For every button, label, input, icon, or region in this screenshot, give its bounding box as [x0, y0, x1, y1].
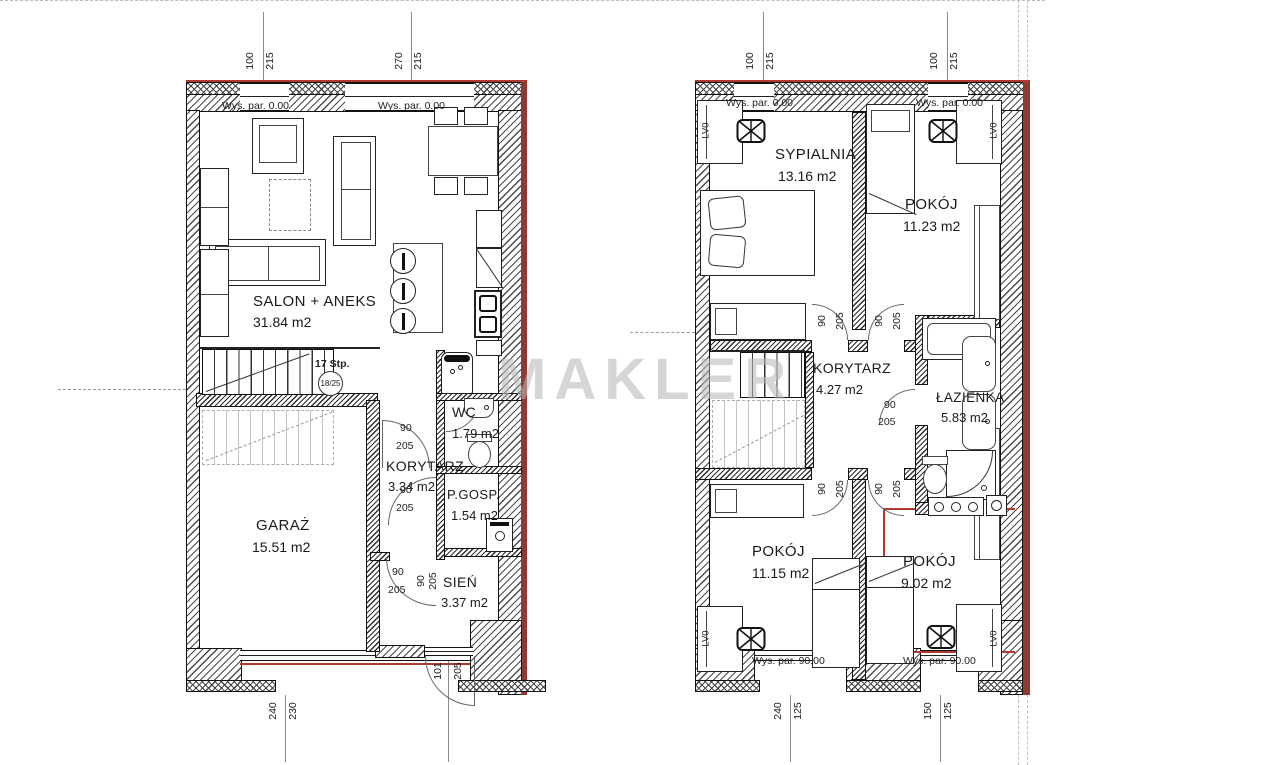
- dim-value: 150: [922, 693, 934, 729]
- level-label: Wys. par. 0.00: [726, 97, 793, 109]
- washbasin-cabinet: [962, 336, 996, 392]
- dim-value: 205: [891, 303, 903, 339]
- level-label: Wys. par. 0.00: [378, 100, 445, 112]
- room-area-sypialnia: 13.16 m2: [778, 168, 836, 184]
- wall-garage-top: [196, 393, 378, 407]
- room-area-salon: 31.84 m2: [253, 314, 311, 330]
- dim-value: 205: [891, 471, 903, 507]
- level-text: Wys. par. 0.00: [916, 97, 983, 109]
- dim-value: 100: [928, 43, 940, 79]
- kitchen-sink: [474, 290, 502, 338]
- radiator-fan-icon: [926, 622, 956, 652]
- toilet: [922, 456, 948, 494]
- room-name-text: ŁAZIENKA: [936, 390, 1004, 405]
- dim-value: 205: [427, 563, 439, 599]
- level-text: Wys. par. 0.00: [222, 100, 289, 112]
- room-label-pokoj2: POKÓJ: [752, 543, 805, 560]
- room-label-salon: SALON + ANEKS: [253, 293, 376, 310]
- wall-bottom: [470, 620, 522, 682]
- room-label-pokoj3: POKÓJ: [903, 553, 956, 570]
- footing: [846, 680, 921, 692]
- room-name-text: KORYTARZ: [813, 360, 891, 376]
- guide-line: [1018, 695, 1019, 765]
- wall-corridor-bottom: [848, 468, 868, 480]
- coffee-table: [269, 179, 311, 231]
- level-text: Wys. par. 0.00: [378, 100, 445, 112]
- dim-value: 270: [393, 43, 405, 79]
- room-name-text: SALON + ANEKS: [253, 293, 376, 310]
- hob-burner: [390, 248, 416, 274]
- dim-value: 100: [244, 43, 256, 79]
- room-area-sien: 3.37 m2: [441, 595, 488, 610]
- dim-line: [790, 695, 791, 762]
- washer: [986, 495, 1007, 516]
- dim-value: 205: [834, 471, 846, 507]
- room-label-lazienka: ŁAZIENKA: [936, 390, 1004, 405]
- door-leaf: [382, 420, 383, 468]
- shelf-unit: [200, 168, 229, 246]
- room-label-korytarz: KORYTARZ: [386, 458, 464, 474]
- single-bed: [812, 558, 860, 668]
- shelf-unit: [200, 249, 229, 337]
- dim-value: 205: [396, 440, 414, 452]
- room-name-text: POKÓJ: [905, 196, 958, 213]
- utility-appliance: [486, 518, 513, 552]
- wall-corridor-bottom: [695, 468, 812, 480]
- footing: [186, 680, 276, 692]
- guide-line: [58, 389, 186, 390]
- room-label-sien: SIEŃ: [443, 574, 477, 590]
- room-area-text: 4.27 m2: [816, 382, 863, 397]
- dim-value: 90: [873, 471, 885, 507]
- level-label: Wys. par. 0.00: [916, 97, 983, 109]
- room-area-text: 11.15 m2: [752, 565, 809, 581]
- room-area-pokoj2: 11.15 m2: [752, 565, 809, 581]
- dim-value: 90: [400, 484, 412, 496]
- radiator-label: LV0: [989, 113, 1000, 149]
- room-area-text: 5.83 m2: [941, 410, 988, 425]
- dim-line: [285, 695, 286, 762]
- dim-value: 101: [432, 653, 444, 689]
- room-name-text: SYPIALNIA: [775, 146, 856, 163]
- washer-counter: [928, 497, 984, 516]
- wall-bottom: [186, 648, 242, 682]
- room-area-text: 9.02 m2: [901, 575, 952, 591]
- stairs-count-label: 17 Stp.: [315, 358, 349, 370]
- guide-line: [1027, 695, 1028, 765]
- shower: [946, 450, 996, 500]
- double-bed: [700, 190, 815, 276]
- dim-value: 215: [264, 43, 276, 79]
- wall-bottom: [375, 645, 425, 658]
- room-area-garaz: 15.51 m2: [252, 539, 310, 555]
- single-bed: [710, 484, 804, 518]
- dim-value: 90: [816, 303, 828, 339]
- armchair: [252, 118, 304, 174]
- room-label-korytarz-u: KORYTARZ: [813, 360, 891, 376]
- guide-line: [630, 332, 695, 333]
- dim-value: 240: [267, 693, 279, 729]
- dim-value: 90: [400, 422, 412, 434]
- radiator-label: LV0: [989, 621, 1000, 657]
- room-name-text: POKÓJ: [752, 543, 805, 560]
- dining-chair: [434, 177, 458, 195]
- room-area-text: 13.16 m2: [778, 168, 836, 184]
- dim-value: 240: [772, 693, 784, 729]
- door-leaf: [474, 656, 475, 706]
- room-area-pokoj1: 11.23 m2: [903, 218, 960, 234]
- dining-chair: [464, 177, 488, 195]
- wall-center-top: [852, 112, 866, 330]
- room-area-wc: 1.79 m2: [452, 426, 499, 441]
- room-label-pokoj1: POKÓJ: [905, 196, 958, 213]
- room-label-garaz: GARAŻ: [256, 517, 310, 534]
- radiator-fan-icon: [736, 116, 766, 146]
- room-name-text: WC: [452, 404, 476, 420]
- dim-value: 205: [452, 653, 464, 689]
- room-area-lazienka: 5.83 m2: [941, 410, 988, 425]
- room-area-text: 11.23 m2: [903, 218, 960, 234]
- room-label-wc: WC: [452, 404, 476, 420]
- footing: [978, 680, 1023, 692]
- dining-chair: [464, 107, 488, 125]
- level-label: Wys. par. 90.00: [752, 655, 825, 667]
- dim-value: 90: [873, 303, 885, 339]
- stairs-count-text: 17 Stp.: [315, 358, 349, 370]
- boiler: [441, 352, 473, 394]
- dim-value: 125: [792, 693, 804, 729]
- floor-plan-canvas: 17 Stp. 18/25 Wys. par. 0.00 Wys. par. 0…: [0, 0, 1268, 765]
- guide-line: [0, 0, 1045, 1]
- room-name-text: POKÓJ: [903, 553, 956, 570]
- stairs-ratio-badge: 18/25: [318, 371, 343, 396]
- wall-right-red-edge: [1023, 82, 1030, 695]
- room-area-korytarz-u: 4.27 m2: [816, 382, 863, 397]
- footing: [695, 680, 760, 692]
- dim-value: 90: [816, 471, 828, 507]
- single-bed: [866, 556, 914, 664]
- dim-value: 205: [834, 303, 846, 339]
- level-label: Wys. par. 90.00: [903, 655, 976, 667]
- level-text: Wys. par. 90.00: [903, 655, 976, 667]
- wall-corridor-top: [848, 340, 868, 352]
- room-area-text: 31.84 m2: [253, 314, 311, 330]
- single-bed: [710, 303, 806, 340]
- dining-table: [428, 126, 498, 176]
- sofa: [333, 136, 376, 246]
- kitchen-cabinet: [476, 248, 502, 288]
- radiator-fan-icon: [736, 624, 766, 654]
- dim-value: 125: [942, 693, 954, 729]
- room-area-pokoj3: 9.02 m2: [901, 575, 952, 591]
- dim-value: 90: [884, 399, 896, 411]
- dim-value: 90: [415, 563, 427, 599]
- stairs-ratio-text: 18/25: [320, 379, 340, 388]
- guide-line: [1027, 0, 1028, 82]
- room-area-text: 15.51 m2: [252, 539, 310, 555]
- room-label-sypialnia: SYPIALNIA: [775, 146, 856, 163]
- watermark: MAKLER: [498, 346, 794, 413]
- hob-burner: [390, 308, 416, 334]
- room-name-text: GARAŻ: [256, 517, 310, 534]
- dim-value: 100: [744, 43, 756, 79]
- room-area-pgosp: 1.54 m2: [451, 508, 498, 523]
- room-name-text: P.GOSP.: [447, 487, 500, 502]
- hob-burner: [390, 278, 416, 304]
- dim-value: 205: [878, 416, 896, 428]
- kitchen-cabinet: [476, 210, 502, 248]
- level-text: Wys. par. 90.00: [752, 655, 825, 667]
- room-area-text: 3.37 m2: [441, 595, 488, 610]
- radiator-label: LV0: [701, 113, 712, 149]
- dim-value: 215: [412, 43, 424, 79]
- level-text: Wys. par. 0.00: [726, 97, 793, 109]
- dim-value: 90: [392, 566, 404, 578]
- room-label-pgosp: P.GOSP.: [447, 487, 500, 502]
- guide-line: [1018, 0, 1019, 82]
- dim-value: 215: [948, 43, 960, 79]
- desk: [974, 205, 1000, 320]
- radiator-fan-icon: [928, 116, 958, 146]
- room-area-text: 1.54 m2: [451, 508, 498, 523]
- dim-value: 215: [764, 43, 776, 79]
- wall-garage-right: [366, 400, 380, 652]
- stairs-upper-flight: [202, 349, 334, 395]
- room-name-text: SIEŃ: [443, 574, 477, 590]
- room-name-text: KORYTARZ: [386, 458, 464, 474]
- dim-line: [940, 695, 941, 762]
- dim-value: 205: [396, 502, 414, 514]
- dim-value: 205: [388, 584, 406, 596]
- radiator-label: LV0: [701, 621, 712, 657]
- dim-value: 230: [287, 693, 299, 729]
- room-area-text: 1.79 m2: [452, 426, 499, 441]
- level-label: Wys. par. 0.00: [222, 100, 289, 112]
